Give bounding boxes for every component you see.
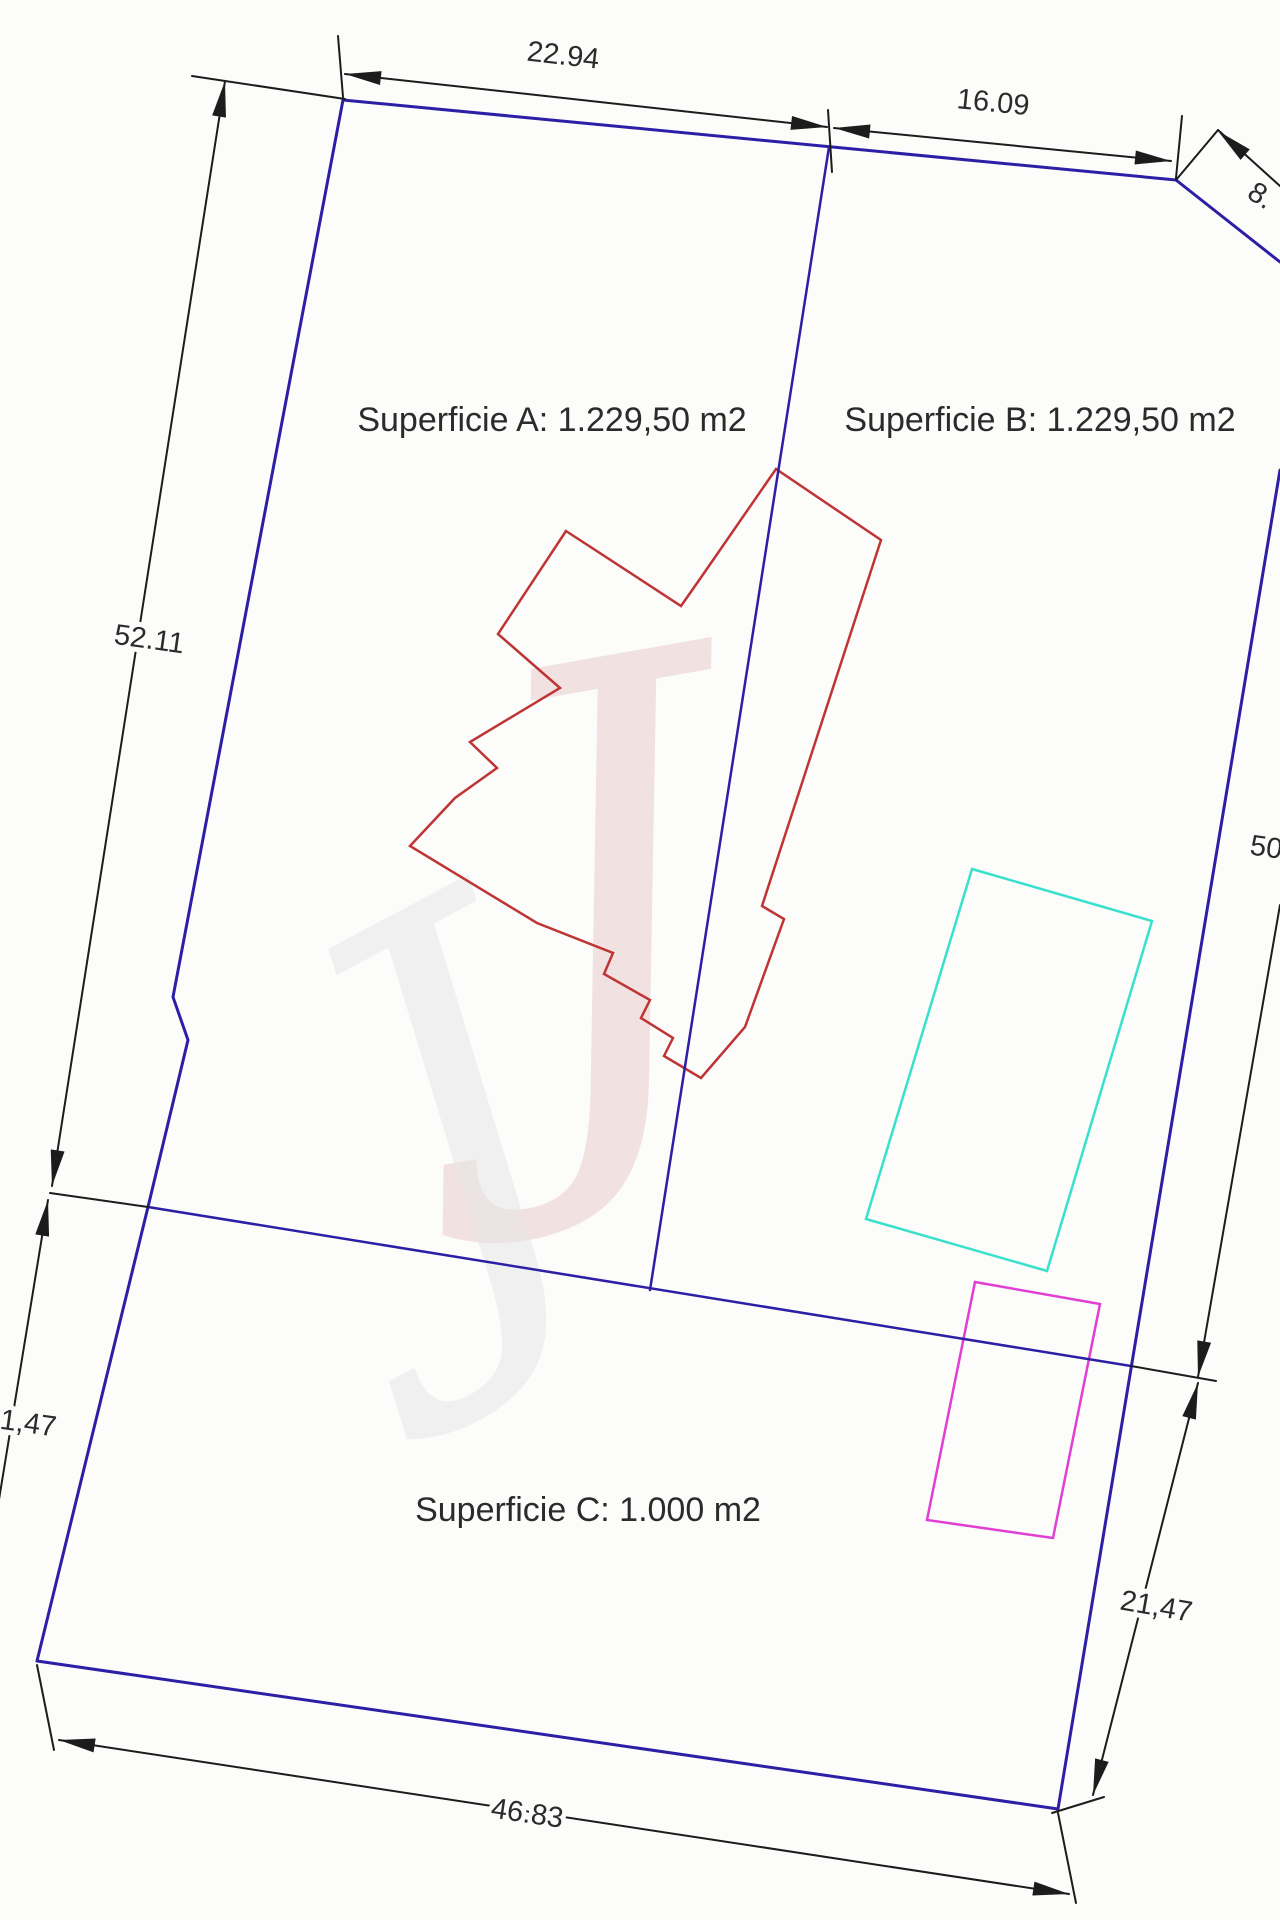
area-label-b: Superficie B: 1.229,50 m2 xyxy=(844,401,1235,439)
ext-bottomleft-corner xyxy=(37,1665,54,1750)
dimension-arrowhead-6 xyxy=(45,1149,64,1187)
dimline-1-47-left xyxy=(0,1200,48,1530)
dimension-arrowhead-9 xyxy=(1182,1381,1204,1419)
dimension-arrowhead-3 xyxy=(1134,151,1171,168)
dim-46-83: 46.83 xyxy=(489,1792,566,1834)
ext-topleft-up xyxy=(338,36,343,97)
dimension-arrowhead-1 xyxy=(790,116,827,134)
area-label-a: Superficie A: 1.229,50 m2 xyxy=(357,401,746,439)
dimension-arrowhead-7 xyxy=(35,1199,55,1237)
dim-50: 50 xyxy=(1248,830,1280,866)
dimension-arrowhead-0 xyxy=(344,67,381,85)
dimension-arrowhead-10 xyxy=(1086,1758,1108,1796)
cyan-rectangle xyxy=(866,869,1152,1271)
ext-divider-top xyxy=(828,110,832,172)
dimline-50-right xyxy=(1198,905,1280,1377)
dimension-arrowhead-8 xyxy=(1191,1340,1211,1378)
tick-left-junction xyxy=(50,1193,148,1207)
dimline-16-09 xyxy=(834,128,1171,161)
dim-21-47-right: 21,47 xyxy=(1118,1585,1195,1629)
dimline-22-94 xyxy=(345,74,827,127)
parcel-bottom-edge xyxy=(37,1661,1058,1809)
dimension-arrowhead-5 xyxy=(212,80,232,118)
magenta-rectangle xyxy=(927,1282,1100,1538)
area-label-c: Superficie C: 1.000 m2 xyxy=(415,1491,761,1529)
dimline-46-83 xyxy=(59,1740,1069,1894)
dim-52-11: 52.11 xyxy=(112,619,186,660)
dimension-arrowhead-2 xyxy=(833,121,870,138)
dim-22-94: 22.94 xyxy=(525,36,601,76)
dim-16-09: 16.09 xyxy=(955,83,1030,122)
site-plan-page: JJ22.9416.098.52.11501,4721,4746.83Super… xyxy=(0,0,1280,1920)
site-plan-drawing: JJ22.9416.098.52.11501,4721,4746.83Super… xyxy=(0,0,1280,1920)
ext-chamfer xyxy=(1176,130,1218,180)
ext-topright-corner xyxy=(1176,116,1182,178)
dimension-arrowhead-11 xyxy=(58,1733,96,1752)
ext-topleft-left xyxy=(192,76,345,99)
ext-bottomright-down xyxy=(1058,1813,1076,1903)
tick-right-junction xyxy=(1131,1366,1216,1381)
dim-8: 8. xyxy=(1242,176,1280,216)
dimension-arrowhead-12 xyxy=(1032,1882,1070,1901)
